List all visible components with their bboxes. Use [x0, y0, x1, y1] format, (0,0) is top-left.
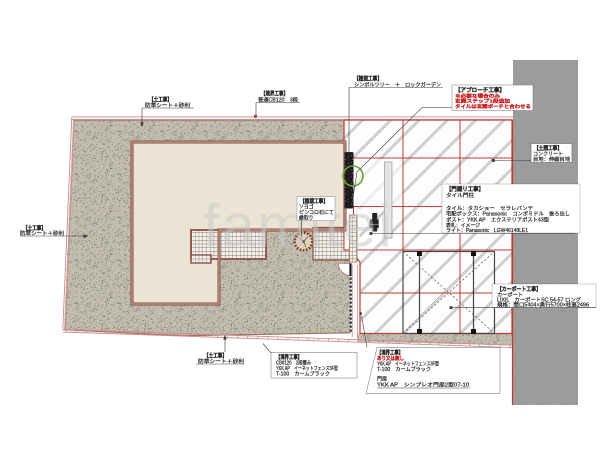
svg-text:ライト：Panasonic LGW46148LE1: ライト：Panasonic LGW46148LE1 [446, 227, 528, 234]
svg-text:【境界工事】: 【境界工事】 [261, 90, 288, 98]
svg-text:【植栽工事】: 【植栽工事】 [354, 75, 382, 83]
svg-text:T-100 カームブラック: T-100 カームブラック [377, 365, 431, 373]
svg-text:目地：伸縮目地: 目地：伸縮目地 [533, 155, 570, 163]
svg-text:※必要な場合のみ: ※必要な場合のみ [455, 93, 500, 100]
svg-text:YKK AP シンプレオ門扉2型07-10: YKK AP シンプレオ門扉2型07-10 [377, 381, 469, 389]
svg-text:【アプローチ工事】: 【アプローチ工事】 [455, 86, 505, 94]
svg-text:玄関ステップ1段追加: 玄関ステップ1段追加 [455, 98, 510, 105]
svg-text:タイルは玄関ポーチと合わせる: タイルは玄関ポーチと合わせる [455, 103, 531, 110]
svg-text:T-100 カームブラック: T-100 カームブラック [276, 370, 330, 378]
svg-text:【門廻リ工事】: 【門廻リ工事】 [446, 185, 484, 193]
svg-text:タイル門柱: タイル門柱 [446, 191, 474, 199]
svg-text:縁取り: 縁取り [299, 214, 314, 222]
svg-text:門扉: 門扉 [377, 375, 387, 383]
